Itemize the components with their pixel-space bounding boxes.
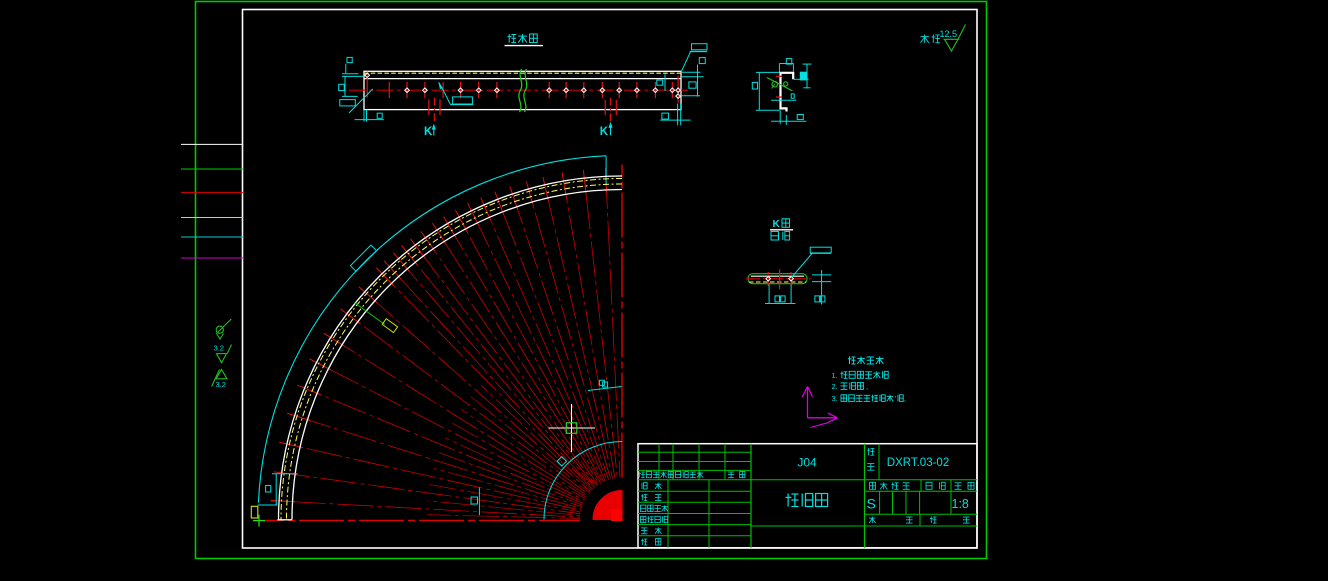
svg-text:S: S <box>867 496 876 512</box>
svg-text:': ' <box>895 396 896 403</box>
svg-text:2.: 2. <box>832 382 838 391</box>
svg-text:12.5: 12.5 <box>940 29 958 39</box>
svg-text:1:8: 1:8 <box>952 497 969 511</box>
svg-text:K: K <box>600 126 609 138</box>
svg-text:3.: 3. <box>832 394 838 403</box>
svg-text:J04: J04 <box>797 456 817 470</box>
svg-text:DXRT.03-02: DXRT.03-02 <box>887 457 949 469</box>
svg-text:3.2: 3.2 <box>214 344 224 353</box>
svg-text:3.2: 3.2 <box>216 380 226 389</box>
svg-text:1.: 1. <box>832 371 838 380</box>
svg-text:K: K <box>773 219 781 230</box>
svg-text:,: , <box>866 382 868 391</box>
svg-text:K: K <box>424 126 433 138</box>
svg-text:,: , <box>904 396 906 403</box>
